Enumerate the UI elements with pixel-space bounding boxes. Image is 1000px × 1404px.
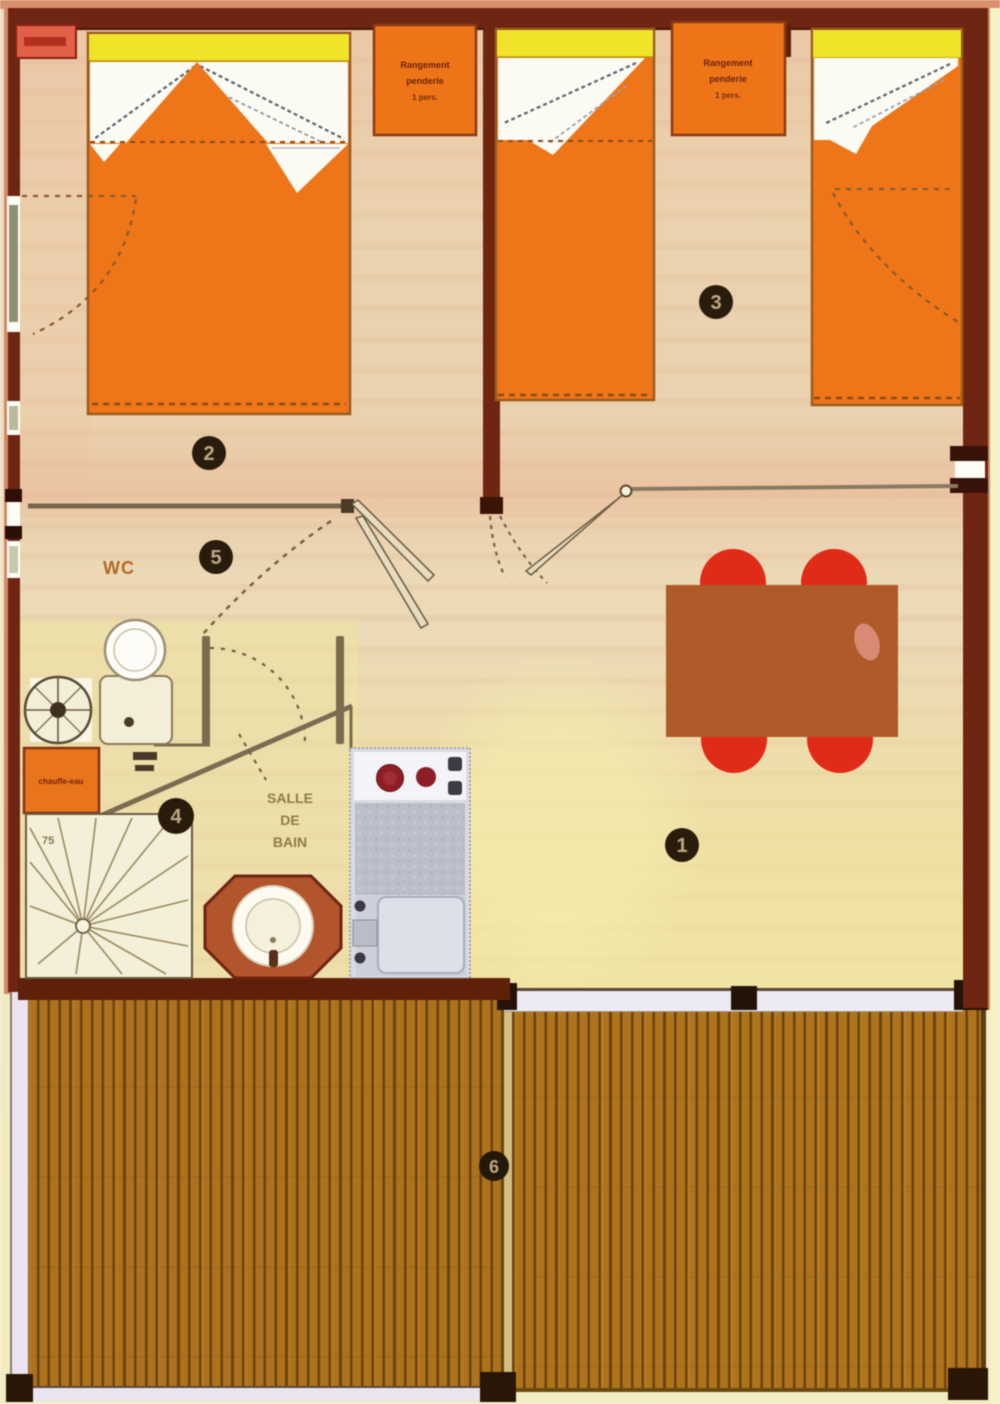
svg-text:3: 3 (710, 292, 721, 314)
svg-text:1: 1 (676, 835, 687, 857)
svg-text:2: 2 (203, 443, 214, 465)
svg-text:WC: WC (103, 558, 135, 578)
svg-text:Rangement: Rangement (400, 60, 449, 70)
svg-text:SALLE: SALLE (267, 790, 313, 806)
svg-text:BAIN: BAIN (273, 834, 307, 850)
svg-text:4: 4 (170, 806, 182, 828)
svg-text:1 pers.: 1 pers. (412, 93, 438, 102)
svg-text:DE: DE (280, 812, 299, 828)
svg-text:penderie: penderie (406, 76, 444, 86)
svg-text:5: 5 (210, 547, 221, 569)
svg-text:6: 6 (489, 1157, 499, 1177)
svg-text:Rangement: Rangement (703, 58, 752, 68)
svg-text:penderie: penderie (709, 74, 747, 84)
svg-text:chauffe-eau: chauffe-eau (39, 777, 84, 786)
svg-text:1 pers.: 1 pers. (715, 91, 741, 100)
svg-text:75: 75 (42, 835, 54, 847)
